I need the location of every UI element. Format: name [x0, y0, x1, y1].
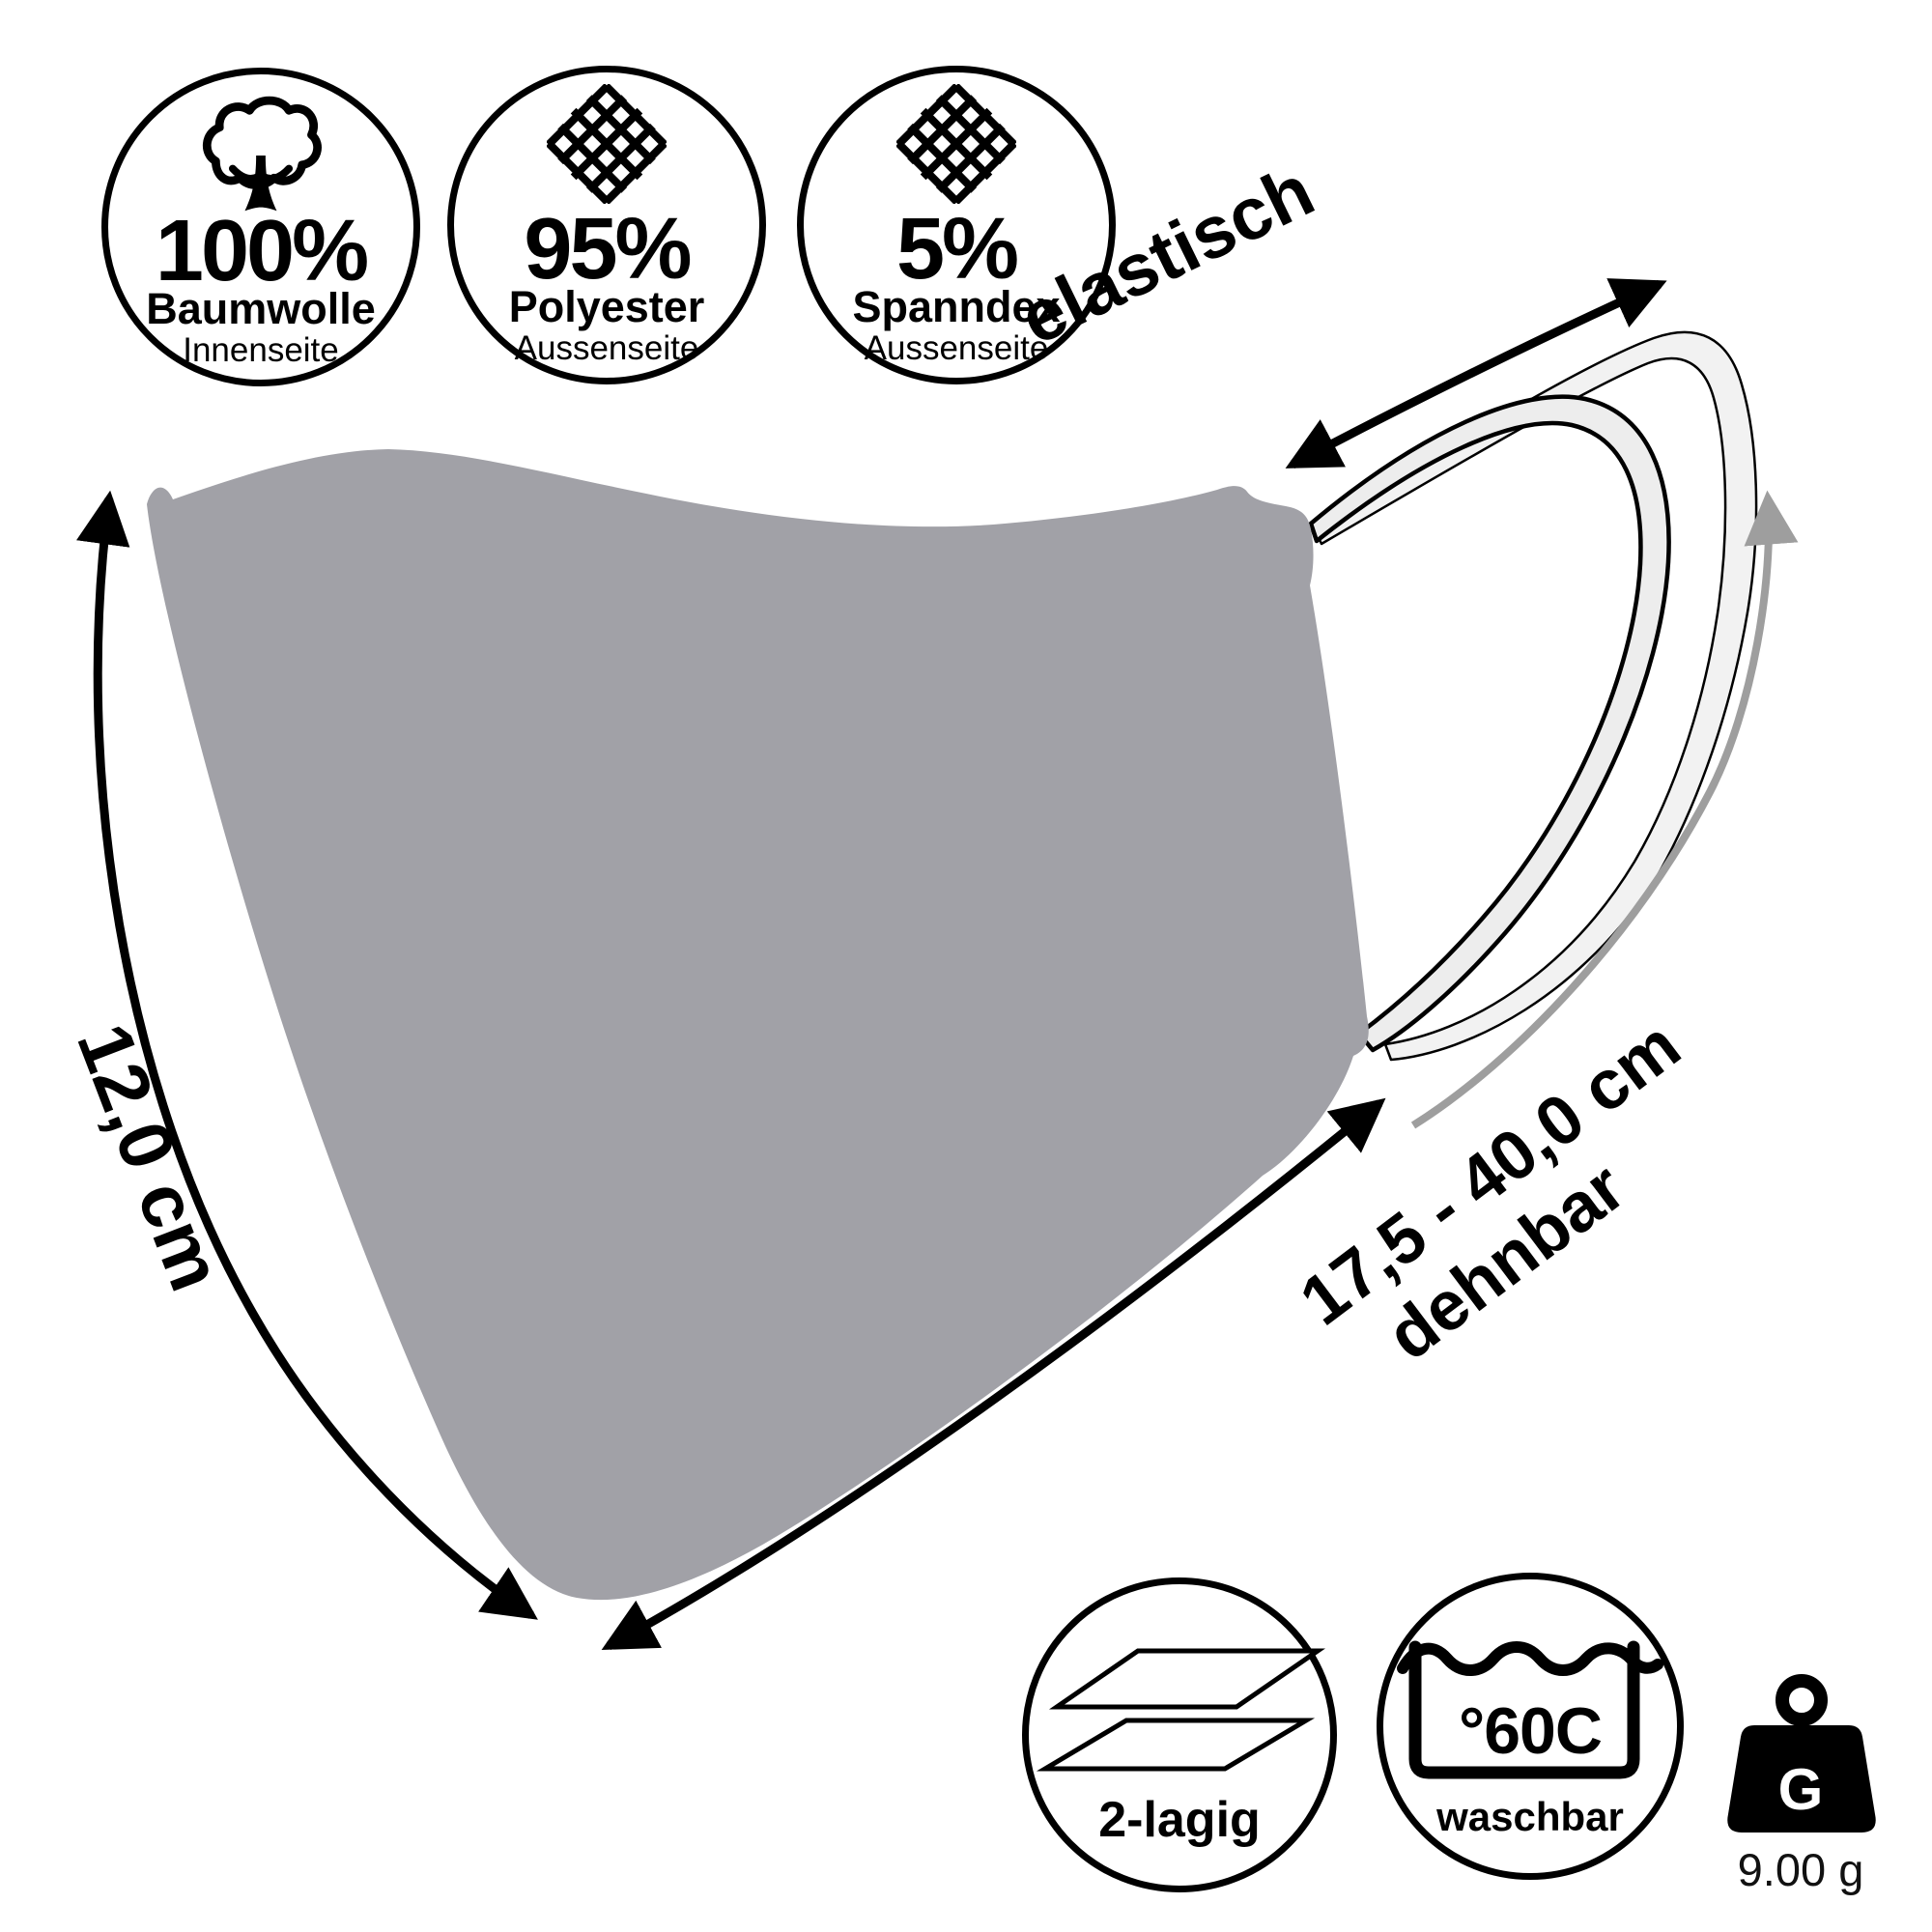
ear-loop-outer	[1316, 332, 1756, 1060]
badge-value: 95%	[454, 206, 759, 293]
ear-loop-inner	[1311, 397, 1669, 1050]
badge-baumwolle: 100% Baumwolle Innenseite	[101, 68, 420, 386]
weight-value: 9.00 g	[1721, 1843, 1880, 1896]
weight-letter: G	[1721, 1756, 1880, 1823]
wash-temperature: °60C	[1383, 1693, 1677, 1769]
badge-material: Baumwolle	[108, 287, 413, 330]
badge-material: Polyester	[454, 285, 759, 328]
badge-washable: °60C waschbar	[1377, 1573, 1684, 1880]
layers-label: 2-lagig	[1029, 1791, 1330, 1849]
badge-value: 100%	[108, 208, 413, 295]
mesh-icon	[547, 84, 667, 209]
mask-infographic: 100% Baumwolle Innenseite 95% Polyester …	[0, 0, 1932, 1932]
badge-polyester: 95% Polyester Aussenseite	[447, 66, 766, 384]
wash-label: waschbar	[1383, 1794, 1677, 1840]
badge-layers: 2-lagig	[1022, 1577, 1337, 1892]
mesh-icon	[896, 84, 1016, 209]
weight-info: G 9.00 g	[1721, 1662, 1880, 1893]
badge-side: Aussenseite	[454, 331, 759, 365]
badge-side: Innenseite	[108, 333, 413, 367]
